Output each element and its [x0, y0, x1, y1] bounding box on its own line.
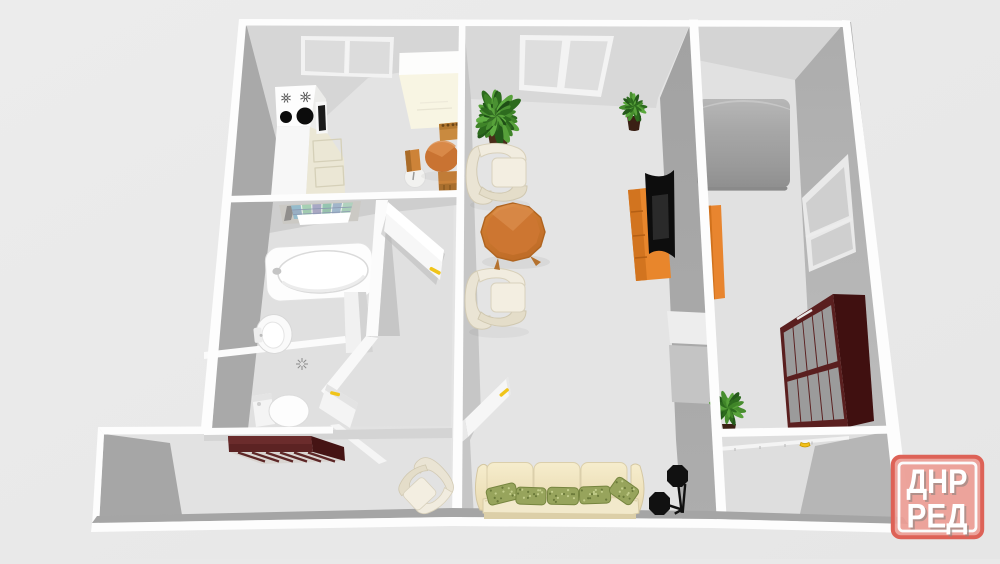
svg-text:РЕД: РЕД	[907, 498, 968, 536]
svg-text:ДНР: ДНР	[907, 463, 968, 501]
